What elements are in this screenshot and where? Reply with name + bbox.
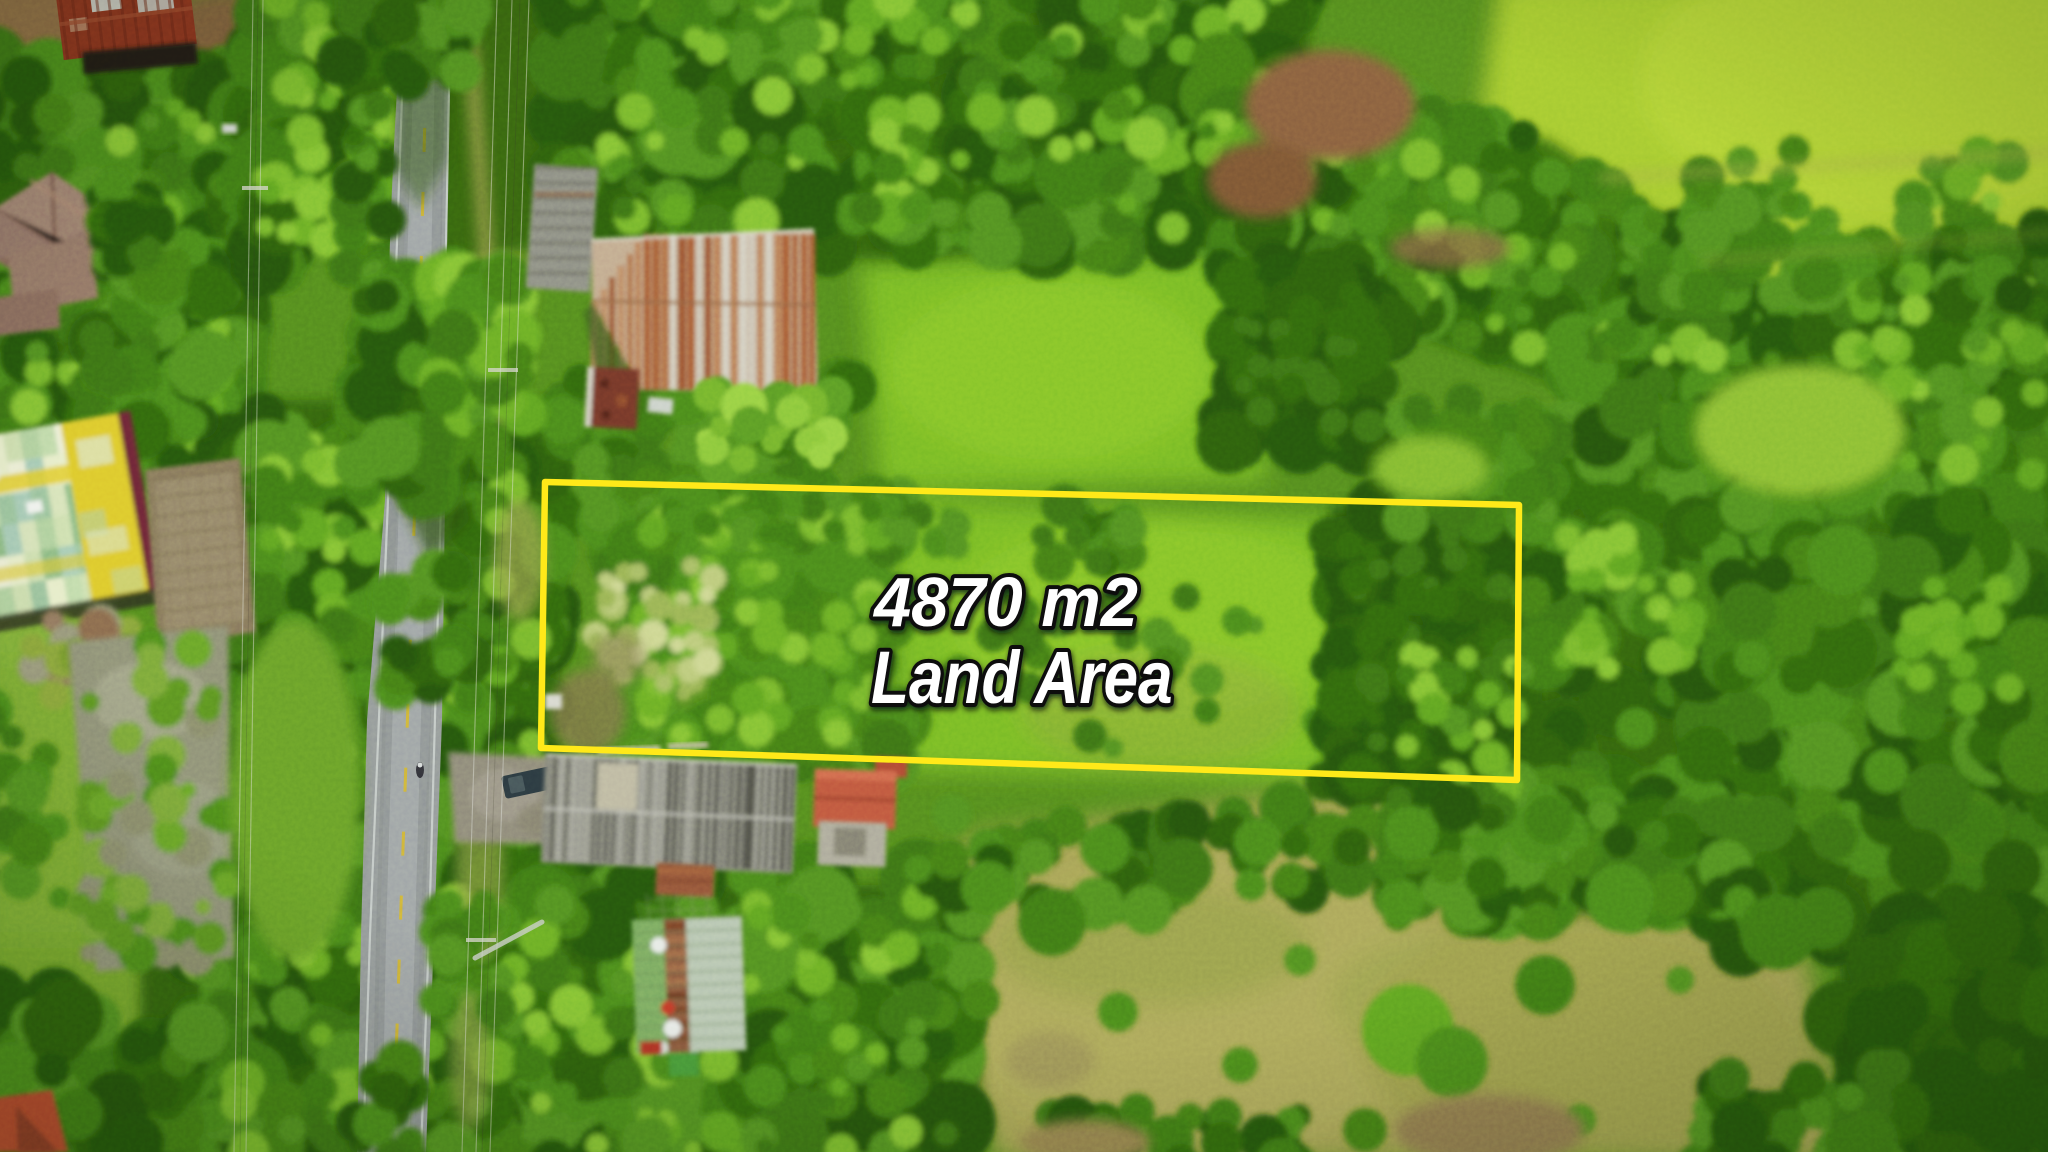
svg-text:4870 m2: 4870 m2 xyxy=(872,563,1138,642)
svg-text:Land Area: Land Area xyxy=(871,637,1173,719)
